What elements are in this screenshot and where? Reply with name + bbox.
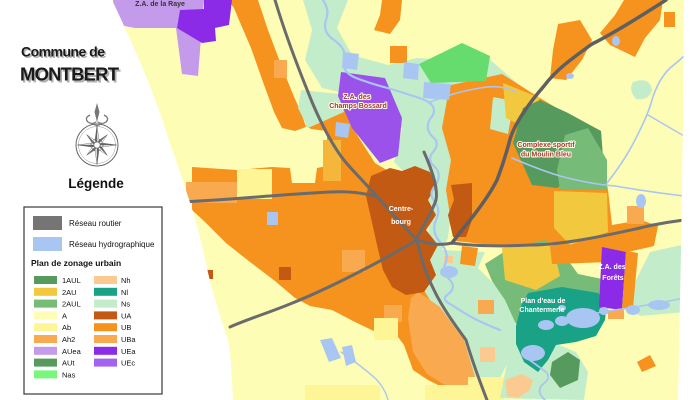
svg-text:AUt: AUt (62, 359, 75, 368)
svg-text:Ah2: Ah2 (62, 335, 75, 344)
svg-text:2AUL: 2AUL (62, 300, 81, 309)
svg-text:Nh: Nh (121, 276, 131, 285)
svg-text:Plan de zonage urbain: Plan de zonage urbain (31, 258, 121, 268)
svg-text:Réseau routier: Réseau routier (69, 219, 122, 228)
svg-text:UB: UB (121, 323, 131, 332)
svg-text:AUea: AUea (62, 347, 82, 356)
svg-text:Réseau hydrographique: Réseau hydrographique (69, 240, 155, 249)
svg-text:UA: UA (121, 311, 131, 320)
svg-text:Plan d'eau de: Plan d'eau de (521, 298, 566, 305)
svg-text:Z.A. des: Z.A. des (343, 94, 370, 101)
svg-text:Commune de: Commune de (21, 44, 105, 60)
svg-text:du Moulin Bleu: du Moulin Bleu (521, 152, 571, 159)
svg-text:Ns: Ns (121, 300, 130, 309)
svg-text:Z.A. de la Raye: Z.A. de la Raye (135, 1, 185, 8)
svg-text:MONTBERT: MONTBERT (20, 64, 120, 85)
svg-text:Légende: Légende (68, 176, 124, 191)
svg-text:2AU: 2AU (62, 288, 77, 297)
svg-text:Forêts: Forêts (602, 275, 624, 282)
svg-text:Chantermerle: Chantermerle (519, 307, 564, 314)
svg-text:Z.A. des: Z.A. des (598, 264, 625, 271)
svg-text:1AUL: 1AUL (62, 276, 81, 285)
svg-text:Centre-: Centre- (389, 206, 414, 213)
svg-text:bourg: bourg (391, 219, 411, 226)
svg-text:UBa: UBa (121, 335, 136, 344)
svg-text:A: A (62, 311, 67, 320)
svg-text:UEc: UEc (121, 359, 135, 368)
svg-text:UEa: UEa (121, 347, 136, 356)
svg-text:Ab: Ab (62, 323, 71, 332)
svg-text:Complexe sportif: Complexe sportif (517, 142, 575, 149)
svg-text:Nas: Nas (62, 370, 76, 379)
svg-text:Nl: Nl (121, 288, 128, 297)
svg-text:Champs Bossard: Champs Bossard (329, 103, 387, 110)
